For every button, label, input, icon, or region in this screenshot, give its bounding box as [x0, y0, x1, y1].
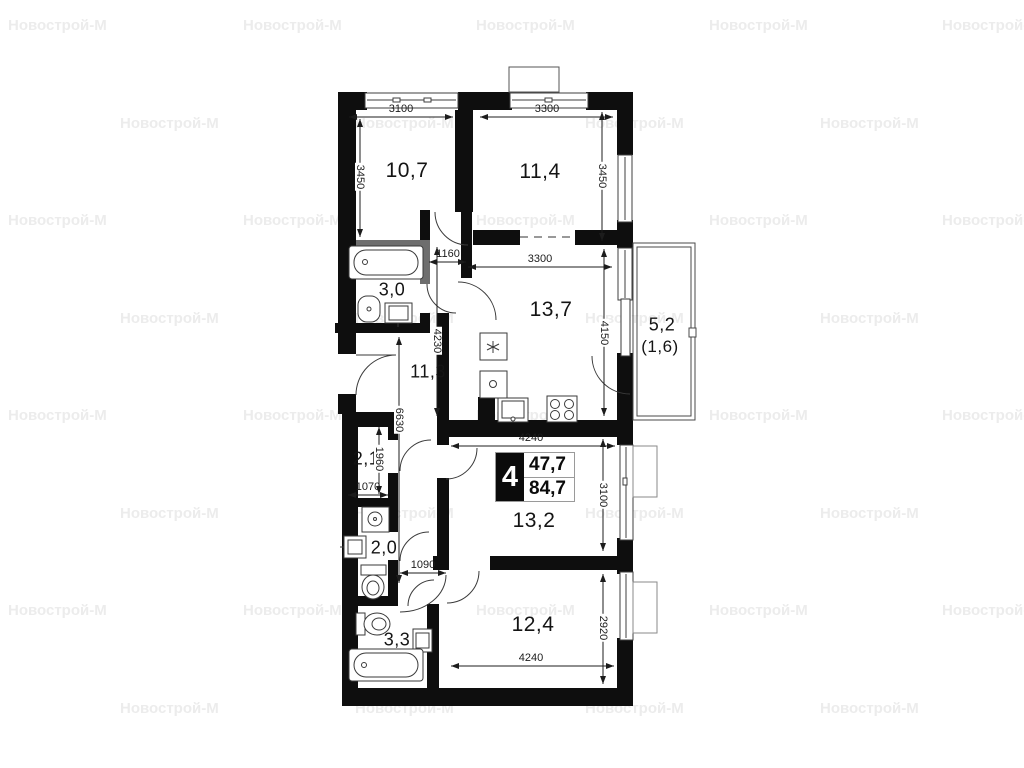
dim-label: 6630: [394, 406, 404, 434]
room-area-label: 3,0: [379, 280, 406, 301]
floor-plan: Новострой-МНовострой-МНовострой-МНовостр…: [0, 0, 1024, 768]
room-area-label: 11,4: [519, 160, 560, 184]
room-area-label: 12,4: [512, 613, 555, 637]
room-area-label: 10,7: [386, 159, 429, 183]
dim-label: 3300: [528, 253, 552, 265]
apartment-info-badge: 4 47,7 84,7: [495, 452, 575, 502]
dim-label: 4230: [432, 327, 442, 355]
dim-label: 3300: [535, 103, 559, 115]
room-area-label: 13,7: [530, 298, 573, 322]
dim-label: 3450: [597, 162, 607, 190]
total-area-value: 84,7: [524, 478, 574, 502]
room-area-label: 13,2: [513, 509, 556, 533]
dim-label: 3100: [389, 103, 413, 115]
room-area-label: 5,2: [649, 315, 676, 336]
dim-label: 3100: [598, 481, 608, 509]
dim-label: 3450: [355, 163, 365, 191]
dim-label: 4150: [599, 319, 609, 347]
rooms-count-badge: 4: [496, 453, 524, 501]
dim-label: 1960: [374, 445, 384, 473]
room-area-label: 3,3: [384, 630, 411, 651]
dim-label: 1090: [411, 559, 435, 571]
room-area-label: 11,3: [410, 362, 446, 383]
dim-label: 1160: [436, 248, 460, 260]
room-area-label: 2,0: [371, 538, 398, 559]
living-area-value: 47,7: [524, 453, 574, 478]
labels-layer: 10,7 11,4 3,0 11,3 13,7 5,2 (1,6) 2,1 2,…: [0, 0, 1024, 768]
room-area-coeff-label: (1,6): [641, 337, 678, 357]
dim-label: 4240: [519, 432, 543, 444]
dim-label: 1070: [356, 481, 380, 493]
dim-label: 4240: [519, 652, 543, 664]
dim-label: 2920: [598, 614, 608, 642]
